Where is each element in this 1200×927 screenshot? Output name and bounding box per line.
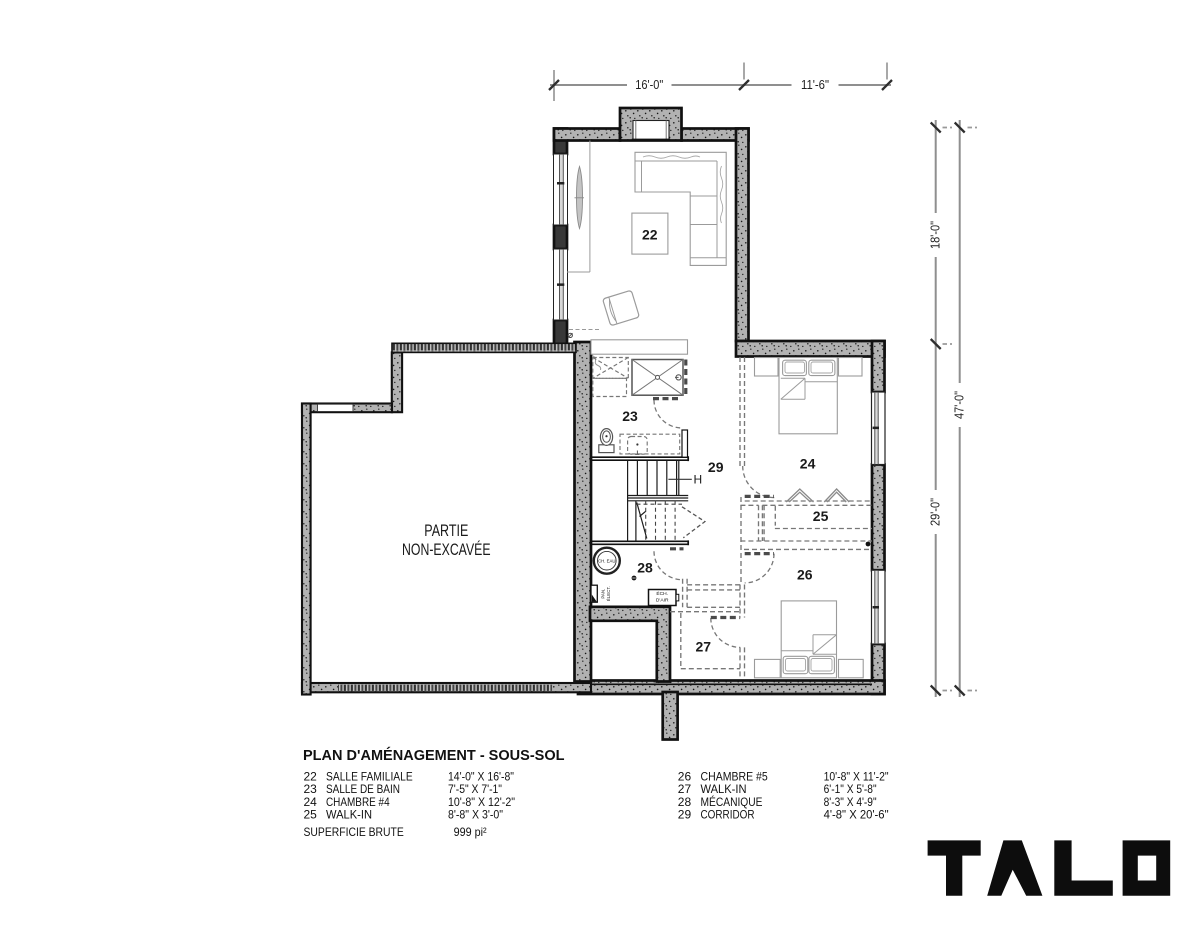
svg-text:25: 25 — [304, 808, 318, 822]
svg-text:11'-6": 11'-6" — [801, 78, 829, 92]
svg-text:47'-0": 47'-0" — [953, 391, 967, 419]
svg-text:NON-EXCAVÉE: NON-EXCAVÉE — [402, 540, 491, 559]
svg-text:26: 26 — [797, 566, 813, 582]
svg-text:7'-5" X 7'-1": 7'-5" X 7'-1" — [448, 782, 502, 796]
svg-text:H: H — [694, 473, 703, 487]
svg-text:4'-8" X 20'-6": 4'-8" X 20'-6" — [824, 808, 889, 822]
svg-text:28: 28 — [637, 560, 653, 576]
svg-text:25: 25 — [813, 508, 829, 524]
svg-text:999 pi²: 999 pi² — [454, 825, 487, 839]
svg-text:29'-0": 29'-0" — [929, 498, 943, 526]
svg-text:16'-0": 16'-0" — [635, 78, 663, 92]
svg-text:8'-8" X 3'-0": 8'-8" X 3'-0" — [448, 808, 503, 822]
svg-text:18'-0": 18'-0" — [929, 221, 943, 249]
svg-text:29: 29 — [708, 459, 724, 475]
svg-text:24: 24 — [800, 456, 816, 472]
svg-text:29: 29 — [678, 808, 692, 822]
svg-text:SUPERFICIE BRUTE: SUPERFICIE BRUTE — [304, 825, 404, 839]
svg-text:23: 23 — [304, 782, 318, 796]
svg-text:22: 22 — [642, 227, 658, 243]
svg-text:CH. EAU: CH. EAU — [598, 559, 615, 564]
svg-text:23: 23 — [622, 408, 638, 424]
svg-text:WALK-IN: WALK-IN — [701, 782, 747, 796]
svg-text:SALLE DE BAIN: SALLE DE BAIN — [326, 782, 400, 796]
svg-text:PLAN D'AMÉNAGEMENT - SOUS-SOL: PLAN D'AMÉNAGEMENT - SOUS-SOL — [303, 747, 565, 764]
svg-text:PAN.: PAN. — [600, 589, 605, 599]
svg-text:CORRIDOR: CORRIDOR — [701, 808, 755, 822]
svg-text:PARTIE: PARTIE — [424, 522, 468, 540]
svg-text:6'-1" X 5'-8": 6'-1" X 5'-8" — [824, 782, 877, 796]
svg-text:WALK-IN: WALK-IN — [326, 808, 372, 822]
svg-text:27: 27 — [696, 638, 712, 654]
svg-text:27: 27 — [678, 782, 692, 796]
svg-text:ÉLECT.: ÉLECT. — [606, 586, 611, 601]
svg-text:D'AIR: D'AIR — [656, 597, 669, 603]
svg-text:ÉCH.: ÉCH. — [656, 590, 668, 597]
